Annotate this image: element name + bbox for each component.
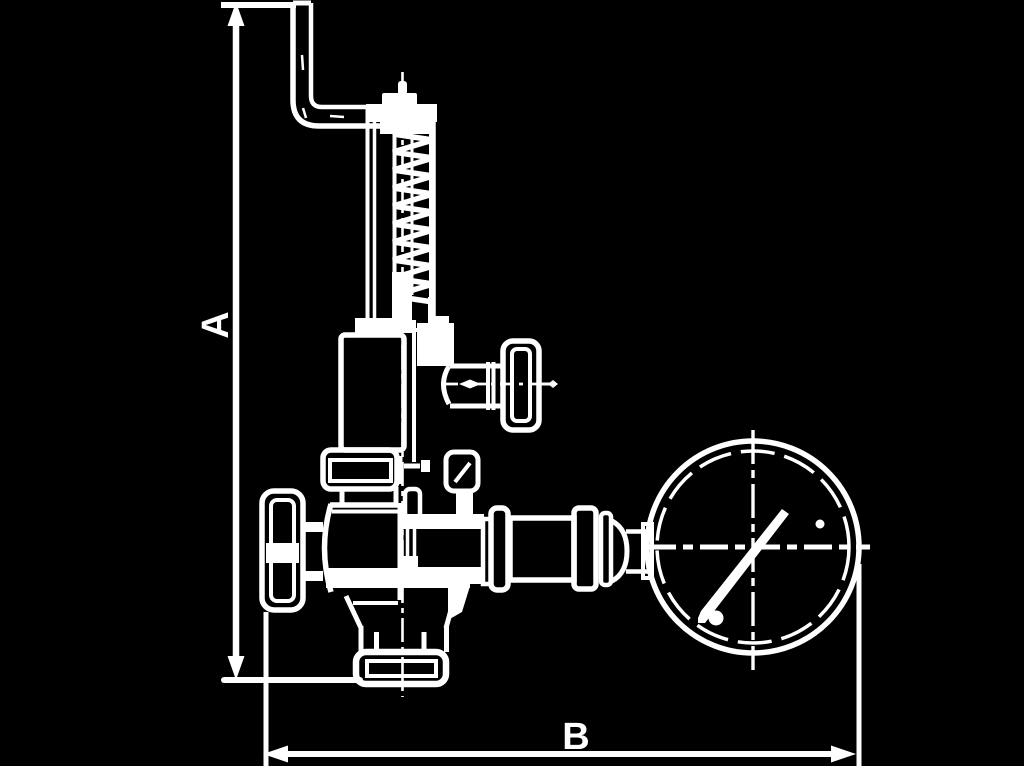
svg-text:A: A [195,311,237,338]
